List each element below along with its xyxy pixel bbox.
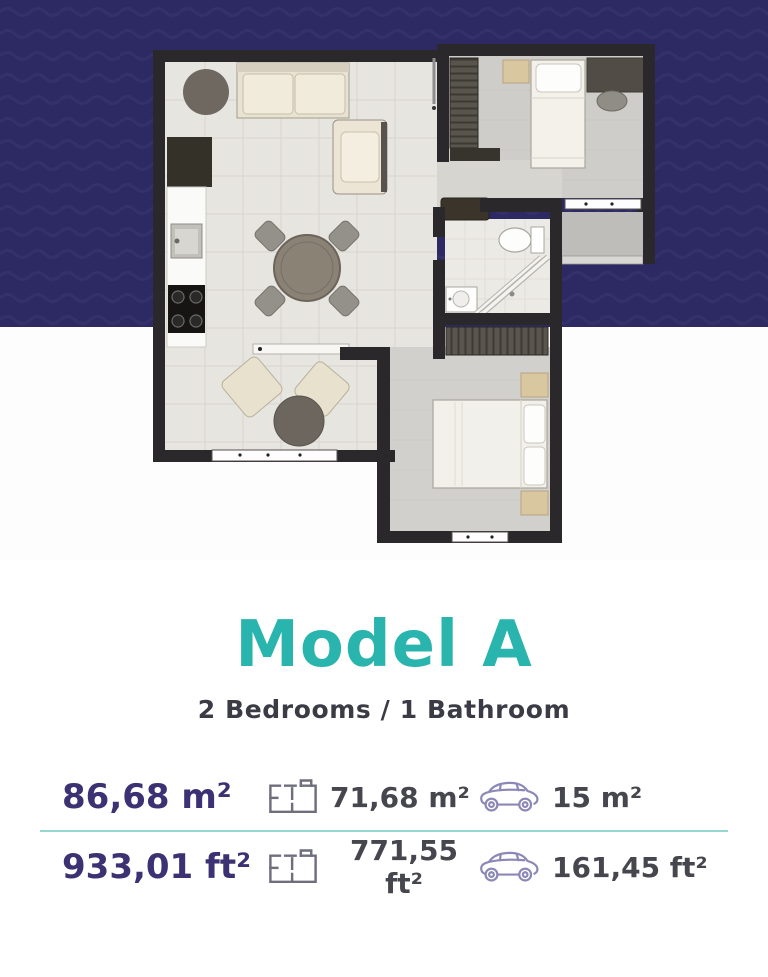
interior-area-m2-value: 71,68 m²	[330, 781, 470, 814]
interior-area-ft2-value: 771,55 ft²	[330, 834, 478, 900]
stats-row-ft2: 933,01 ft² 771,55 ft²	[40, 836, 728, 898]
desk	[587, 58, 645, 92]
car-icon	[478, 777, 542, 817]
parking-area-m2-value: 15 m²	[552, 781, 642, 814]
hero-section	[0, 0, 768, 560]
living-window	[212, 450, 337, 461]
kitchen-cabinet	[167, 137, 212, 187]
total-area-m2: 86,68 m²	[40, 777, 266, 817]
bedroom2-window	[452, 532, 508, 542]
desk-chair	[597, 91, 627, 111]
dining-table	[274, 235, 340, 301]
interior-area-m2: 71,68 m²	[266, 777, 478, 817]
floor-plan	[0, 0, 768, 560]
double-bed	[433, 400, 547, 488]
single-bed	[531, 60, 585, 168]
nightstand	[503, 60, 529, 83]
floorplan-icon	[266, 777, 320, 817]
terrace	[562, 212, 643, 264]
closet	[450, 58, 478, 148]
stats-row-m2: 86,68 m² 71,68 m²	[40, 766, 728, 828]
parking-area-m2: 15 m²	[478, 777, 728, 817]
wardrobe	[446, 327, 548, 355]
total-area-ft2: 933,01 ft²	[40, 847, 266, 887]
coffee-table	[274, 396, 324, 446]
kitchen	[167, 137, 212, 347]
entry-door-leaf	[432, 58, 436, 110]
round-rug	[183, 69, 229, 115]
subtitle: 2 Bedrooms / 1 Bathroom	[0, 695, 768, 724]
tv-bench	[253, 344, 349, 354]
dresser	[450, 148, 500, 161]
bedroom2-furniture	[433, 327, 548, 515]
armchair	[333, 120, 387, 194]
page-title: Model A	[0, 612, 768, 679]
nightstand	[521, 491, 548, 515]
interior-area-ft2: 771,55 ft²	[266, 834, 478, 900]
details-section: Model A 2 Bedrooms / 1 Bathroom 86,68 m²…	[0, 612, 768, 898]
parking-area-ft2: 161,45 ft²	[478, 847, 728, 887]
kitchen-sink	[171, 224, 202, 258]
sofa	[237, 63, 349, 118]
stove	[168, 285, 205, 333]
toilet	[499, 227, 544, 253]
floorplan-icon	[266, 847, 320, 887]
stats-table: 86,68 m² 71,68 m²	[40, 766, 728, 898]
parking-area-ft2-value: 161,45 ft²	[552, 851, 708, 884]
divider-line	[40, 830, 728, 832]
bathroom-sink	[446, 287, 477, 312]
nightstand	[521, 373, 548, 397]
car-icon	[478, 847, 542, 887]
bedroom1-window	[565, 199, 641, 209]
